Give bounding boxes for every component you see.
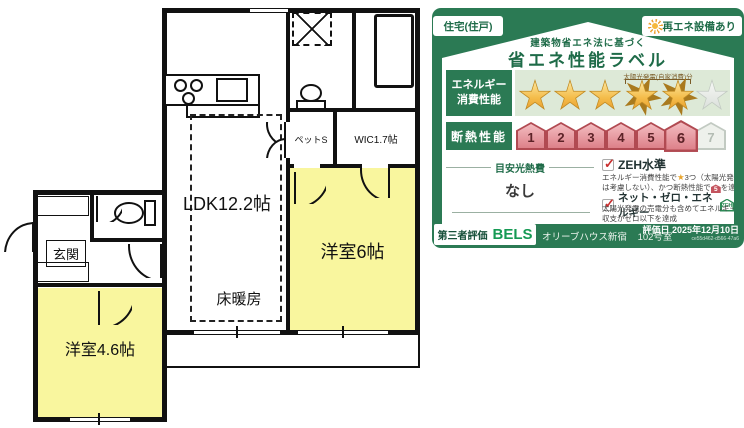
window-tick	[236, 326, 238, 338]
stove-burner-icon	[182, 92, 195, 105]
toilet-bowl	[300, 84, 322, 102]
door-arc	[98, 291, 132, 325]
zeh-standard-row: ZEH水準	[602, 156, 666, 173]
window-tick	[98, 413, 100, 425]
stove-burner-icon	[174, 79, 187, 92]
star-rating: 太陽光発電(自家消費)分	[515, 70, 730, 116]
door-arc-entrance	[4, 222, 34, 252]
star-gold-icon	[588, 79, 622, 113]
zeh-standard-title: ZEH水準	[618, 156, 666, 173]
star-empty-icon	[695, 79, 729, 113]
toilet-tank	[144, 200, 156, 226]
label-title: 省エネ性能ラベル	[442, 46, 734, 71]
room-label-ldk: LDK12.2帖	[168, 190, 286, 216]
bels-brand: BELS	[492, 226, 532, 243]
star-solar-icon	[625, 79, 659, 113]
bathtub	[374, 14, 414, 88]
star-solar-icon	[661, 79, 695, 113]
door-arc	[128, 244, 162, 278]
room-label-western-6: 洋室6帖	[290, 238, 415, 264]
balcony	[164, 335, 420, 368]
wall-segment	[33, 190, 167, 195]
closet	[37, 196, 89, 216]
evaluation-date-block: 評価日 2025年12月10日 ce55d462-d566-47a6	[609, 223, 739, 242]
door-arc	[266, 138, 286, 158]
star-gold-icon	[553, 79, 587, 113]
wall-segment	[162, 8, 420, 13]
net-zero-desc: 太陽光発電の売電分も含めてエネルギー 収支がゼロ以下を達成	[602, 204, 737, 224]
bels-box: 第三者評価 BELS	[434, 224, 536, 245]
utility-cost-value: なし	[446, 180, 594, 201]
room-label-entrance: 玄関	[46, 240, 86, 267]
renewable-badge: 再エネ設備あり	[642, 16, 743, 36]
evaluation-date: 評価日 2025年12月10日	[609, 223, 739, 236]
window	[250, 8, 288, 13]
utility-cost-header: 目安光熱費	[446, 160, 594, 175]
wall-segment	[415, 8, 420, 335]
room-label-wic: WIC1.7帖	[337, 131, 415, 146]
star-gold-icon	[518, 79, 552, 113]
stove-burner-icon	[190, 79, 203, 92]
label-house-panel: 建築物省エネ法に基づく 省エネ性能ラベル エネルギー 消費性能 太陽光発電(自家…	[442, 22, 734, 224]
insulation-level-6-achieved: 6	[664, 120, 698, 152]
room-label-pet: ペットS	[288, 133, 334, 146]
divider-line	[452, 212, 590, 213]
energy-performance-label: 住宅(住戸) 再エネ設備あり 建築物省エネ法に基づく 省エネ性能ラベル エネルギ…	[432, 8, 744, 248]
wall-segment	[33, 283, 166, 287]
door-arc	[360, 168, 390, 198]
insulation-level-3: 3	[576, 122, 606, 150]
certificate-id: ce55d462-d566-47a6	[609, 236, 739, 242]
insulation-level-2: 2	[546, 122, 576, 150]
sun-icon	[648, 19, 663, 34]
checkbox-checked-icon	[602, 159, 614, 171]
room-label-floor-heating: 床暖房	[196, 288, 282, 309]
energy-row-label: エネルギー 消費性能	[446, 70, 512, 116]
listing-image: LDK12.2帖 床暖房 洋室6帖 洋室4.6帖 WIC1.7帖 ペットS 玄関…	[0, 0, 744, 428]
window	[70, 417, 130, 422]
insulation-level-5: 5	[636, 122, 666, 150]
insulation-level-4: 4	[606, 122, 636, 150]
door-arc	[294, 172, 326, 204]
window-tick	[342, 326, 344, 338]
room-label-western-46: 洋室4.6帖	[40, 336, 160, 360]
third-party-label: 第三者評価	[437, 227, 487, 242]
door-opening	[294, 164, 320, 168]
housing-type-badge: 住宅(住戸)	[433, 16, 503, 36]
floor-plan: LDK12.2帖 床暖房 洋室6帖 洋室4.6帖 WIC1.7帖 ペットS 玄関	[0, 0, 432, 428]
renewable-badge-label: 再エネ設備あり	[663, 19, 737, 34]
washing-machine-space	[292, 12, 332, 46]
insulation-level-1: 1	[516, 122, 546, 150]
wall-segment	[286, 8, 290, 122]
wall-segment	[352, 8, 356, 112]
star-inline-icon: ★	[677, 172, 685, 182]
wall-segment	[90, 238, 166, 242]
insulation-row-label: 断熱性能	[446, 122, 512, 150]
kitchen-sink	[216, 78, 248, 102]
wall-segment	[90, 190, 94, 242]
wall-segment	[162, 330, 167, 422]
door-arc	[96, 196, 122, 222]
insulation-level-7: 7	[696, 122, 726, 150]
